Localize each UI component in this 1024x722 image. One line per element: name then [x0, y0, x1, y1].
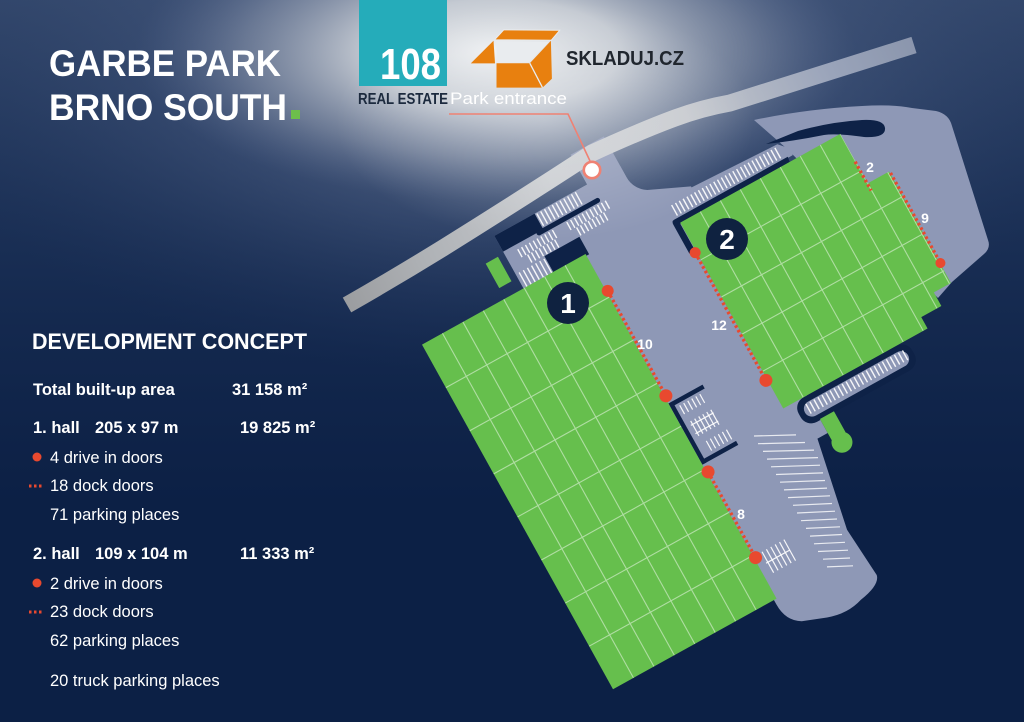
svg-text:DEVELOPMENT CONCEPT: DEVELOPMENT CONCEPT	[32, 329, 308, 354]
svg-text:108: 108	[380, 40, 441, 89]
svg-text:4 drive in doors: 4 drive in doors	[50, 449, 163, 467]
svg-text:Park entrance: Park entrance	[450, 90, 567, 108]
svg-text:2: 2	[866, 159, 874, 175]
svg-text:20 truck parking places: 20 truck parking places	[50, 672, 220, 690]
svg-text:SKLADUJ.CZ: SKLADUJ.CZ	[566, 48, 684, 70]
svg-text:18 dock doors: 18 dock doors	[50, 477, 154, 495]
svg-text:1: 1	[560, 288, 576, 319]
svg-text:71 parking places: 71 parking places	[50, 506, 179, 524]
svg-text:Total built-up area: Total built-up area	[33, 381, 176, 399]
svg-text:205 x 97 m: 205 x 97 m	[95, 419, 178, 437]
svg-text:2. hall: 2. hall	[33, 545, 80, 563]
svg-text:BRNO SOUTH: BRNO SOUTH	[49, 87, 287, 128]
svg-text:62 parking places: 62 parking places	[50, 632, 179, 650]
svg-text:10: 10	[637, 336, 653, 352]
svg-text:11 333 m²: 11 333 m²	[240, 545, 315, 563]
svg-text:23 dock doors: 23 dock doors	[50, 603, 154, 621]
svg-text:8: 8	[737, 506, 745, 522]
svg-text:12: 12	[711, 317, 727, 333]
svg-text:1. hall: 1. hall	[33, 419, 80, 437]
svg-text:9: 9	[921, 210, 929, 226]
svg-text:31 158 m²: 31 158 m²	[232, 381, 308, 399]
svg-text:19 825 m²: 19 825 m²	[240, 419, 316, 437]
svg-text:2 drive in doors: 2 drive in doors	[50, 575, 163, 593]
svg-text:REAL ESTATE: REAL ESTATE	[358, 91, 448, 108]
svg-text:2: 2	[719, 224, 735, 255]
svg-text:109 x 104 m: 109 x 104 m	[95, 545, 188, 563]
svg-text:GARBE PARK: GARBE PARK	[49, 43, 281, 84]
